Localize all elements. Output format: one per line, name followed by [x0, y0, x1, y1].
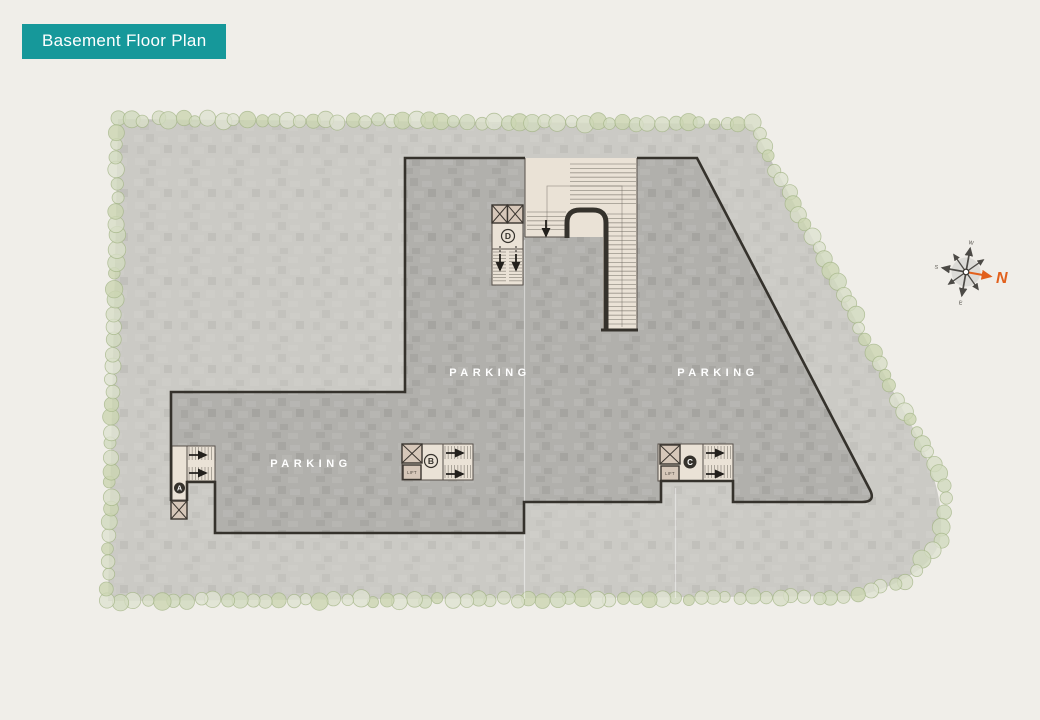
tree-icon [730, 117, 745, 132]
tree-icon [268, 114, 281, 127]
tree-icon [882, 379, 895, 392]
tree-icon [103, 568, 115, 580]
tree-icon [848, 306, 865, 323]
tree-icon [938, 479, 951, 492]
tree-icon [683, 595, 694, 606]
tree-icon [111, 178, 123, 190]
tree-icon [641, 592, 657, 608]
parking-label: PARKING [677, 367, 758, 379]
tree-icon [154, 593, 172, 611]
lift-room-label: LIFT [665, 471, 675, 476]
page-title: Basement Floor Plan [42, 31, 206, 50]
tree-icon [746, 589, 761, 604]
tree-icon [814, 592, 826, 604]
tree-icon [460, 115, 475, 130]
tree-icon [160, 112, 177, 129]
core-b-label: B [428, 456, 434, 466]
tree-icon [921, 445, 934, 458]
tree-icon [195, 592, 208, 605]
core-c-label: C [687, 458, 693, 467]
tree-icon [359, 116, 372, 129]
tree-icon [108, 204, 124, 220]
tree-icon [445, 593, 461, 609]
tree-icon [574, 589, 591, 606]
tree-icon [433, 113, 449, 129]
tree-icon [773, 590, 789, 606]
tree-icon [200, 110, 216, 126]
tree-icon [911, 565, 923, 577]
floor-plan-canvas: D LIFT B LIFT C [0, 0, 1040, 720]
tree-icon [511, 595, 524, 608]
tree-icon [873, 356, 888, 371]
tree-icon [102, 543, 114, 555]
tree-icon [604, 118, 616, 130]
tree-icon [104, 373, 116, 385]
tree-icon [106, 385, 120, 399]
tree-icon [109, 151, 122, 164]
tree-icon [629, 591, 643, 605]
tree-icon [271, 593, 286, 608]
tree-icon [326, 592, 340, 606]
tree-icon [104, 397, 118, 411]
tree-icon [222, 594, 235, 607]
tree-icon [407, 592, 423, 608]
tree-icon [734, 593, 746, 605]
tree-icon [774, 172, 788, 186]
tree-icon [639, 116, 655, 132]
tree-icon [179, 594, 194, 609]
tree-icon [103, 464, 119, 480]
compass-east-label: E [958, 300, 963, 307]
compass-north-label: N [996, 270, 1008, 287]
tree-icon [342, 594, 354, 606]
tree-icon [695, 591, 708, 604]
tree-icon [239, 111, 256, 128]
core-a-label: A [177, 486, 182, 493]
tree-icon [798, 590, 811, 603]
tree-icon [615, 114, 630, 129]
tree-icon [372, 113, 385, 126]
floor-plan-page: Basement Floor Plan [0, 0, 1040, 720]
tree-icon [460, 594, 474, 608]
tree-icon [853, 322, 865, 334]
compass-south-label: S [934, 265, 939, 272]
tree-icon [106, 307, 121, 322]
tree-icon [617, 592, 629, 604]
tree-icon [380, 593, 394, 607]
tree-icon [108, 241, 126, 259]
tree-icon [864, 583, 879, 598]
tree-icon [189, 116, 200, 127]
tree-icon [300, 594, 311, 605]
tree-icon [101, 555, 115, 569]
tree-icon [550, 592, 566, 608]
parking-label: PARKING [449, 367, 530, 379]
tree-icon [103, 489, 120, 506]
core-d: D [492, 205, 523, 285]
tree-icon [497, 591, 510, 604]
tree-icon [112, 192, 124, 204]
tree-icon [940, 492, 952, 504]
tree-icon [549, 115, 566, 132]
tree-icon [693, 117, 704, 128]
tree-icon [655, 117, 670, 132]
tree-icon [890, 578, 902, 590]
compass-rose: W S E N [929, 235, 1008, 311]
page-title-banner: Basement Floor Plan [22, 24, 226, 59]
tree-icon [105, 281, 122, 298]
tree-icon [353, 590, 370, 607]
tree-icon [447, 116, 459, 128]
core-d-label: D [505, 231, 511, 241]
parking-label: PARKING [270, 458, 351, 470]
tree-icon [108, 125, 124, 141]
tree-icon [288, 594, 301, 607]
tree-icon [256, 115, 268, 127]
tree-icon [762, 150, 774, 162]
tree-icon [837, 590, 850, 603]
tree-icon [227, 114, 239, 126]
tree-icon [432, 593, 443, 604]
tree-icon [760, 591, 772, 603]
tree-icon [112, 595, 128, 611]
tree-icon [851, 587, 865, 601]
compass-west-label: W [968, 240, 975, 247]
tree-icon [136, 115, 148, 127]
tree-icon [99, 582, 113, 596]
tree-icon [104, 425, 120, 441]
tree-icon [330, 115, 345, 130]
tree-icon [103, 450, 118, 465]
tree-icon [535, 594, 550, 609]
tree-icon [258, 595, 272, 609]
tree-icon [247, 594, 260, 607]
lift-room-label: LIFT [407, 470, 417, 475]
core-c: LIFT C [658, 444, 733, 481]
tree-icon [346, 113, 360, 127]
tree-icon [293, 115, 306, 128]
tree-icon [486, 113, 503, 130]
tree-icon [105, 348, 120, 363]
tree-icon [102, 529, 116, 543]
tree-icon [937, 505, 952, 520]
tree-icon [143, 595, 154, 606]
tree-icon [859, 333, 871, 345]
tree-icon [311, 593, 328, 610]
tree-icon [904, 413, 916, 425]
tree-icon [709, 119, 720, 130]
